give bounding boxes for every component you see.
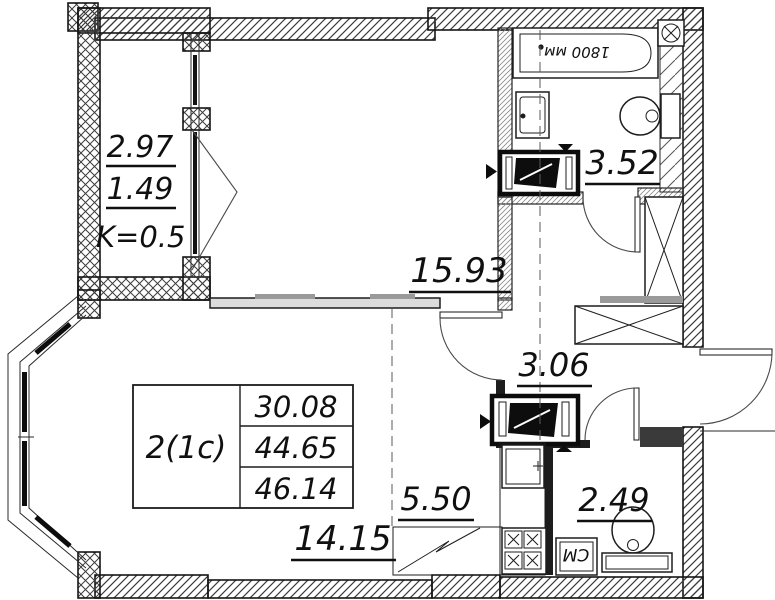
living-zone-label: 14.15	[291, 519, 396, 560]
vent-fan-icon	[658, 20, 684, 46]
marker-triangle-right	[486, 164, 497, 179]
wardrobe-vertical	[645, 197, 683, 303]
svg-text:5.50: 5.50	[400, 480, 471, 518]
bathroom-toilet-icon	[620, 94, 680, 138]
kitchen-label: 5.50	[398, 480, 474, 520]
balcony-reduced-area-label: 1.49	[107, 172, 174, 207]
svg-text:14.15: 14.15	[294, 519, 391, 559]
svg-text:2.49: 2.49	[578, 481, 649, 519]
wardrobe-shelf	[600, 296, 683, 303]
balcony-labels: 2.97 1.49 K=0.5	[96, 130, 185, 254]
stove-icon	[502, 528, 546, 574]
marker-triangle-right	[480, 414, 491, 429]
wc-washer-label: СМ	[562, 544, 589, 564]
balcony-window-sash	[193, 132, 197, 254]
bay-window	[8, 290, 100, 598]
wardrobe-horizontal	[575, 306, 683, 344]
kitchen-sink-icon	[502, 445, 544, 488]
wc-washing-machine-icon: СМ	[556, 538, 597, 575]
door-wc	[585, 388, 639, 440]
bay-window-sash	[36, 517, 70, 546]
room-divider-wall	[210, 298, 440, 308]
door-entrance	[700, 349, 775, 431]
main-room-label: 15.93	[409, 251, 511, 292]
bathroom-washing-machine-icon	[500, 152, 578, 194]
floor-plan-svg: 1800 мм	[0, 0, 775, 600]
hallway-label: 3.06	[517, 346, 592, 386]
floor-plan-page: 1800 мм	[0, 0, 775, 600]
door-bathroom	[583, 197, 640, 252]
balcony-window-sash	[193, 55, 197, 105]
bathroom-sink-icon	[516, 92, 549, 138]
balcony-area-label: 2.97	[107, 130, 174, 165]
living-area-value: 30.08	[254, 390, 337, 424]
apartment-type-label: 2(1c)	[146, 430, 227, 466]
bay-window-sash	[36, 324, 70, 353]
wc-label: 2.49	[577, 481, 652, 521]
hall-appliance-icon	[492, 396, 578, 444]
bathroom-label: 3.52	[585, 143, 660, 184]
apartment-info-table: 2(1c) 30.08 44.65 46.14	[133, 385, 353, 508]
bathtub-length-label: 1800 мм	[544, 43, 610, 61]
entrance-pier	[640, 427, 683, 447]
balcony-coef-label: K=0.5	[96, 220, 185, 254]
svg-text:15.93: 15.93	[410, 251, 507, 291]
bathtub-icon: 1800 мм	[513, 28, 658, 78]
svg-text:3.52: 3.52	[585, 143, 658, 182]
door-main-room	[440, 312, 502, 380]
total-area-coef-value: 46.14	[254, 472, 337, 506]
total-area-value: 44.65	[254, 431, 337, 465]
svg-text:3.06: 3.06	[518, 346, 589, 384]
